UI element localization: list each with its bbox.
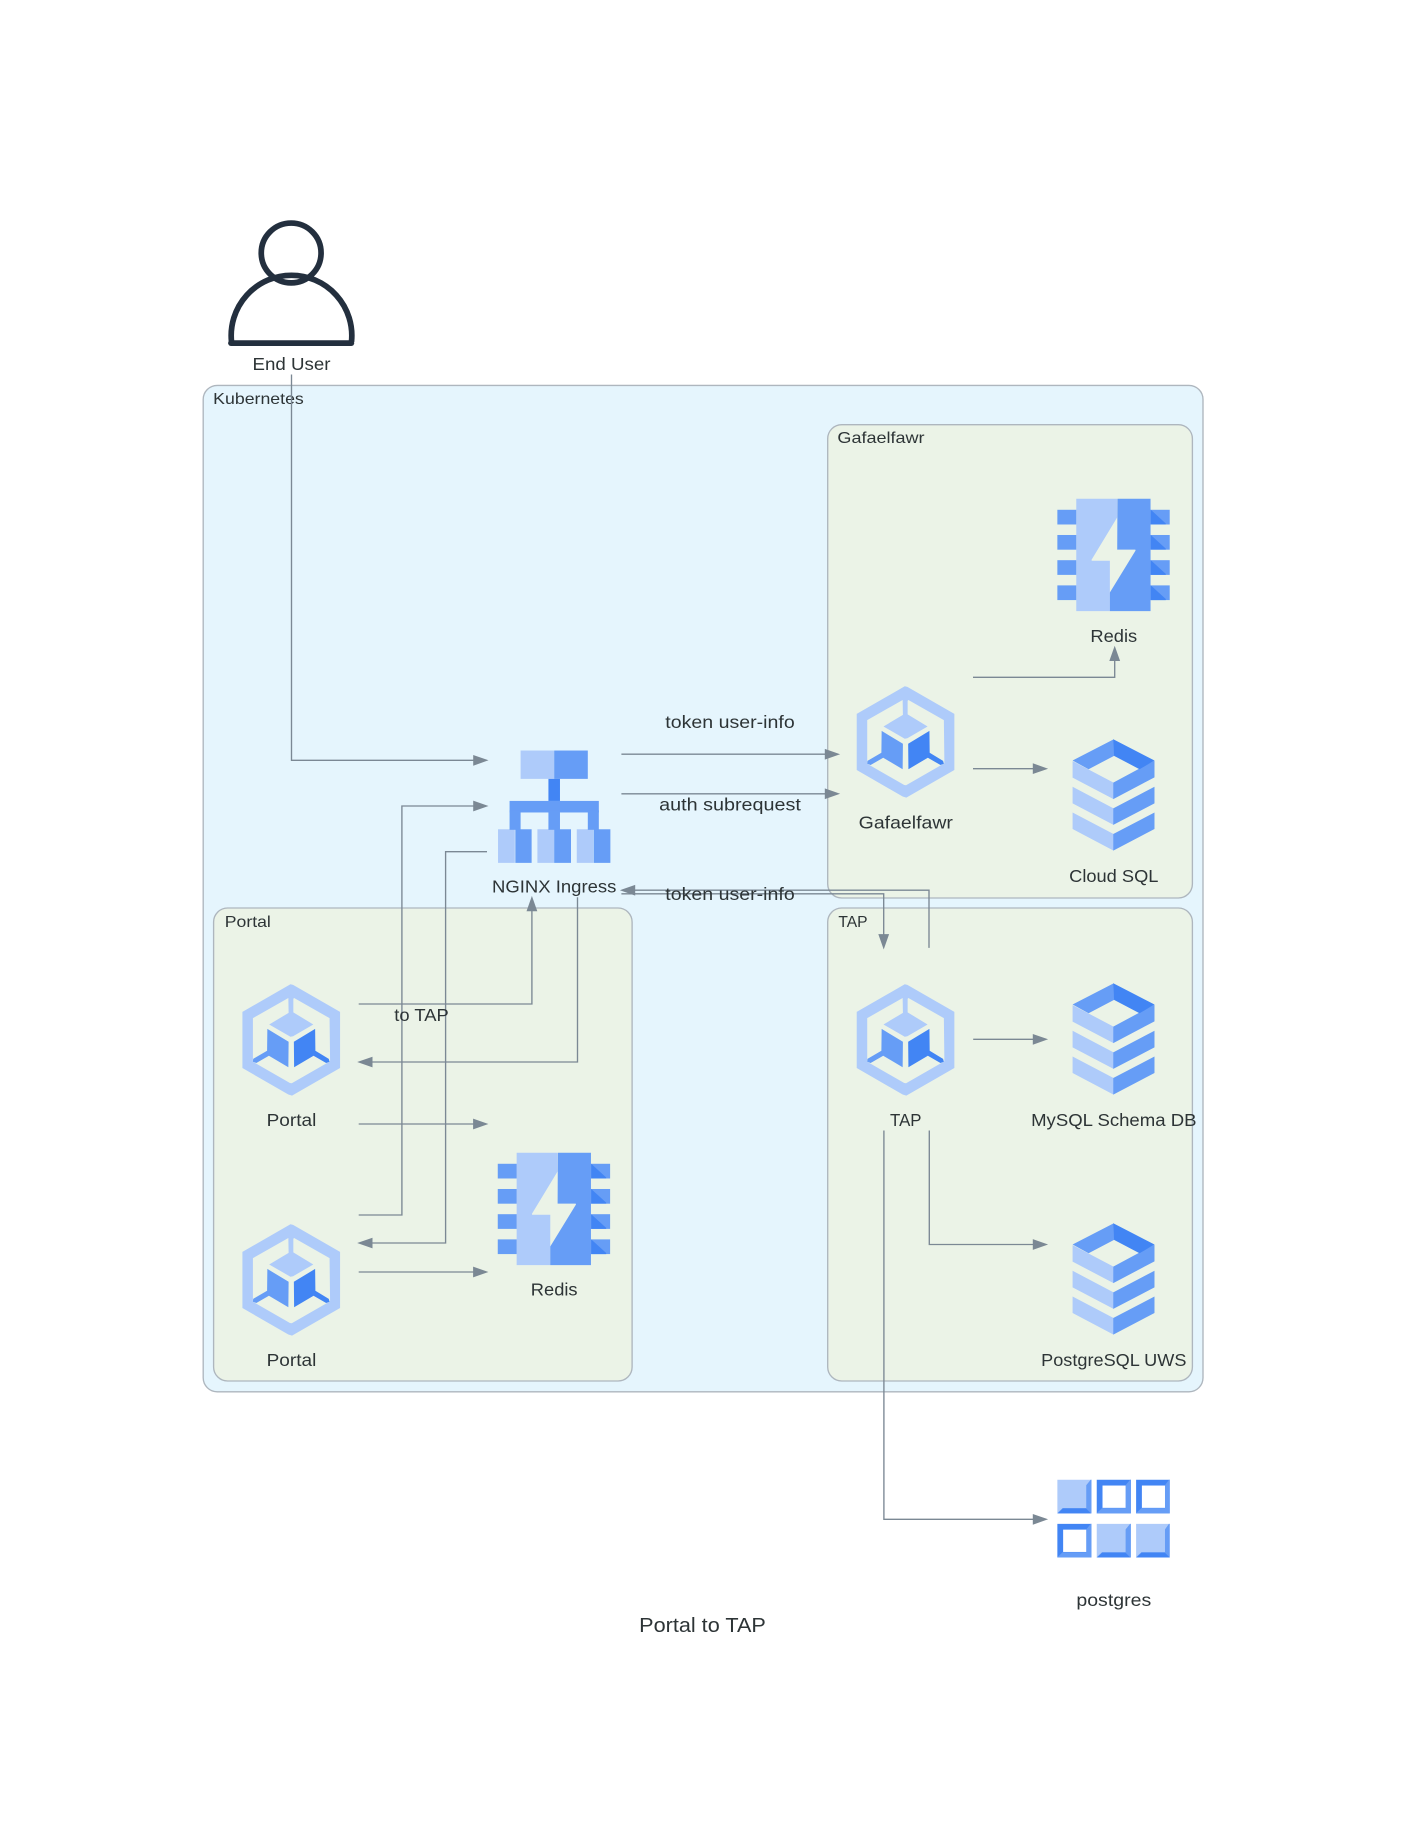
svg-text:Gafaelfawr: Gafaelfawr <box>837 430 925 447</box>
svg-text:Cloud SQL: Cloud SQL <box>1069 866 1159 886</box>
svg-text:TAP: TAP <box>838 914 867 931</box>
svg-text:Portal to TAP: Portal to TAP <box>639 1615 766 1637</box>
svg-text:to TAP: to TAP <box>394 1005 449 1025</box>
svg-text:token user-info: token user-info <box>665 712 794 732</box>
svg-text:Portal: Portal <box>225 914 271 931</box>
svg-text:End User: End User <box>253 354 331 374</box>
svg-text:Kubernetes: Kubernetes <box>213 391 304 408</box>
svg-text:Portal: Portal <box>267 1350 317 1370</box>
svg-text:Redis: Redis <box>1090 626 1137 646</box>
svg-text:postgres: postgres <box>1076 1590 1151 1610</box>
svg-text:TAP: TAP <box>890 1110 922 1130</box>
svg-text:token user-info: token user-info <box>665 884 794 904</box>
svg-text:Redis: Redis <box>531 1280 578 1300</box>
svg-text:auth subrequest: auth subrequest <box>659 795 801 815</box>
svg-text:Gafaelfawr: Gafaelfawr <box>859 813 953 833</box>
svg-text:NGINX Ingress: NGINX Ingress <box>492 877 617 897</box>
svg-text:Portal: Portal <box>267 1110 317 1130</box>
svg-text:PostgreSQL UWS: PostgreSQL UWS <box>1041 1350 1186 1370</box>
svg-text:MySQL Schema DB: MySQL Schema DB <box>1031 1110 1196 1130</box>
